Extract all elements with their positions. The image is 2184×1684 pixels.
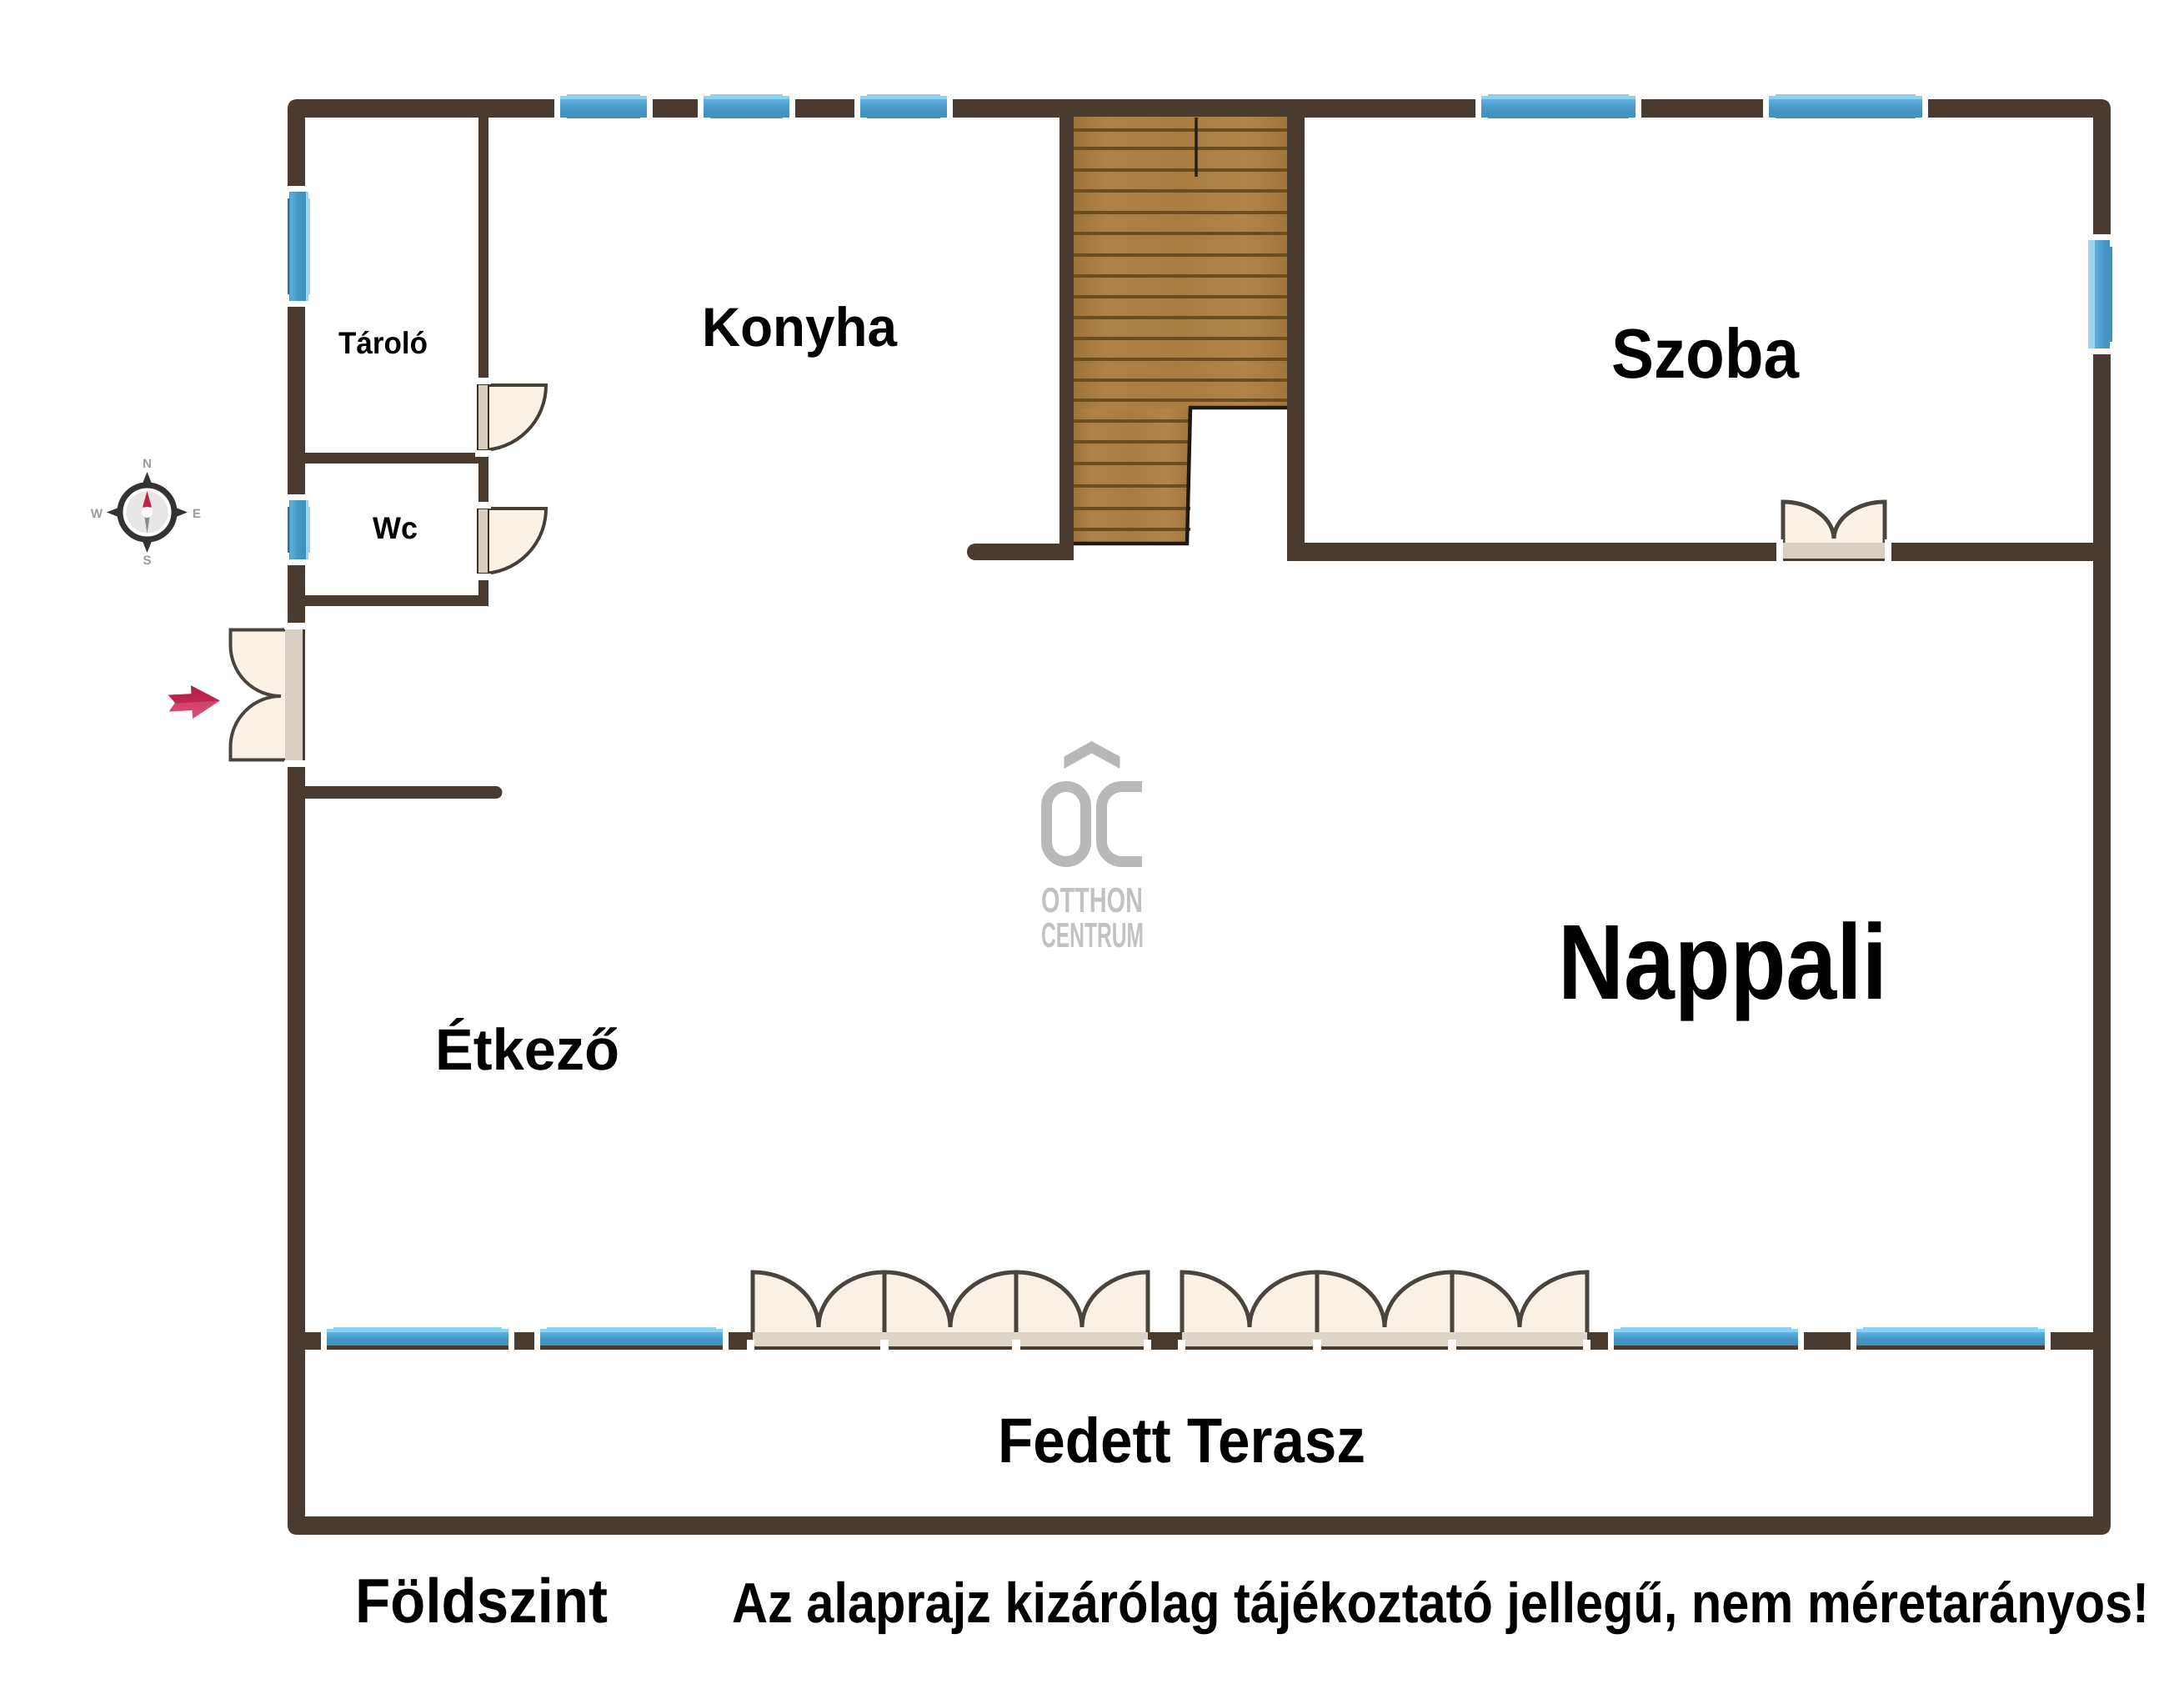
svg-text:E: E: [193, 507, 201, 521]
svg-text:W: W: [91, 507, 103, 521]
svg-text:Szoba: Szoba: [1611, 314, 1800, 393]
svg-text:Tároló: Tároló: [338, 326, 428, 360]
svg-text:S: S: [143, 554, 151, 568]
svg-text:Fedett Terasz: Fedett Terasz: [998, 1406, 1365, 1476]
svg-text:Az alaprajz kizárólag tájékozt: Az alaprajz kizárólag tájékoztató jelleg…: [732, 1571, 2149, 1635]
svg-text:Étkező: Étkező: [435, 1017, 619, 1082]
svg-text:Konyha: Konyha: [702, 296, 898, 358]
svg-text:Wc: Wc: [373, 511, 418, 545]
svg-text:Nappali: Nappali: [1558, 903, 1887, 1022]
svg-text:OTTHON: OTTHON: [1041, 880, 1143, 920]
svg-text:CENTRUM: CENTRUM: [1041, 915, 1144, 955]
svg-text:N: N: [143, 457, 152, 471]
svg-text:Földszint: Földszint: [355, 1566, 608, 1636]
